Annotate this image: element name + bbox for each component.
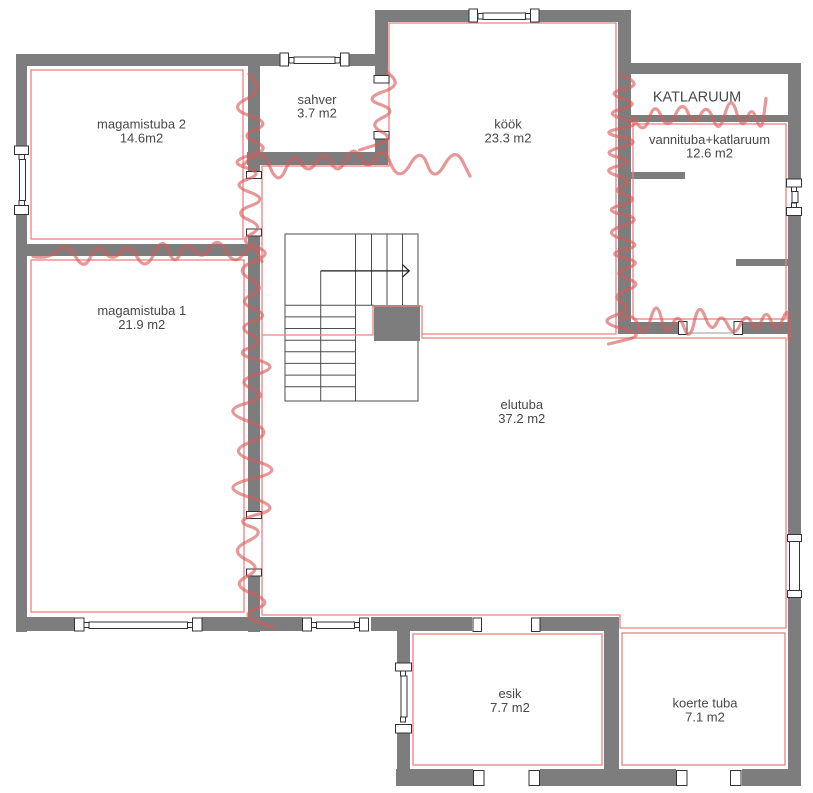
svg-text:magamistuba 1: magamistuba 1 — [97, 303, 186, 318]
svg-text:koerte tuba: koerte tuba — [672, 696, 738, 711]
svg-text:23.3 m2: 23.3 m2 — [485, 130, 532, 145]
svg-text:magamistuba 2: magamistuba 2 — [97, 117, 186, 132]
svg-text:köök: köök — [494, 117, 522, 132]
svg-text:37.2 m2: 37.2 m2 — [498, 411, 545, 426]
svg-text:7.1 m2: 7.1 m2 — [685, 710, 725, 725]
svg-text:12.6 m2: 12.6 m2 — [686, 146, 733, 161]
svg-text:elutuba: elutuba — [500, 397, 543, 412]
svg-text:21.9 m2: 21.9 m2 — [118, 317, 165, 332]
svg-text:7.7 m2: 7.7 m2 — [490, 700, 530, 715]
svg-text:14.6m2: 14.6m2 — [120, 130, 163, 145]
svg-text:3.7 m2: 3.7 m2 — [297, 106, 337, 121]
svg-text:KATLARUUM: KATLARUUM — [653, 90, 741, 106]
svg-text:esik: esik — [498, 686, 522, 701]
